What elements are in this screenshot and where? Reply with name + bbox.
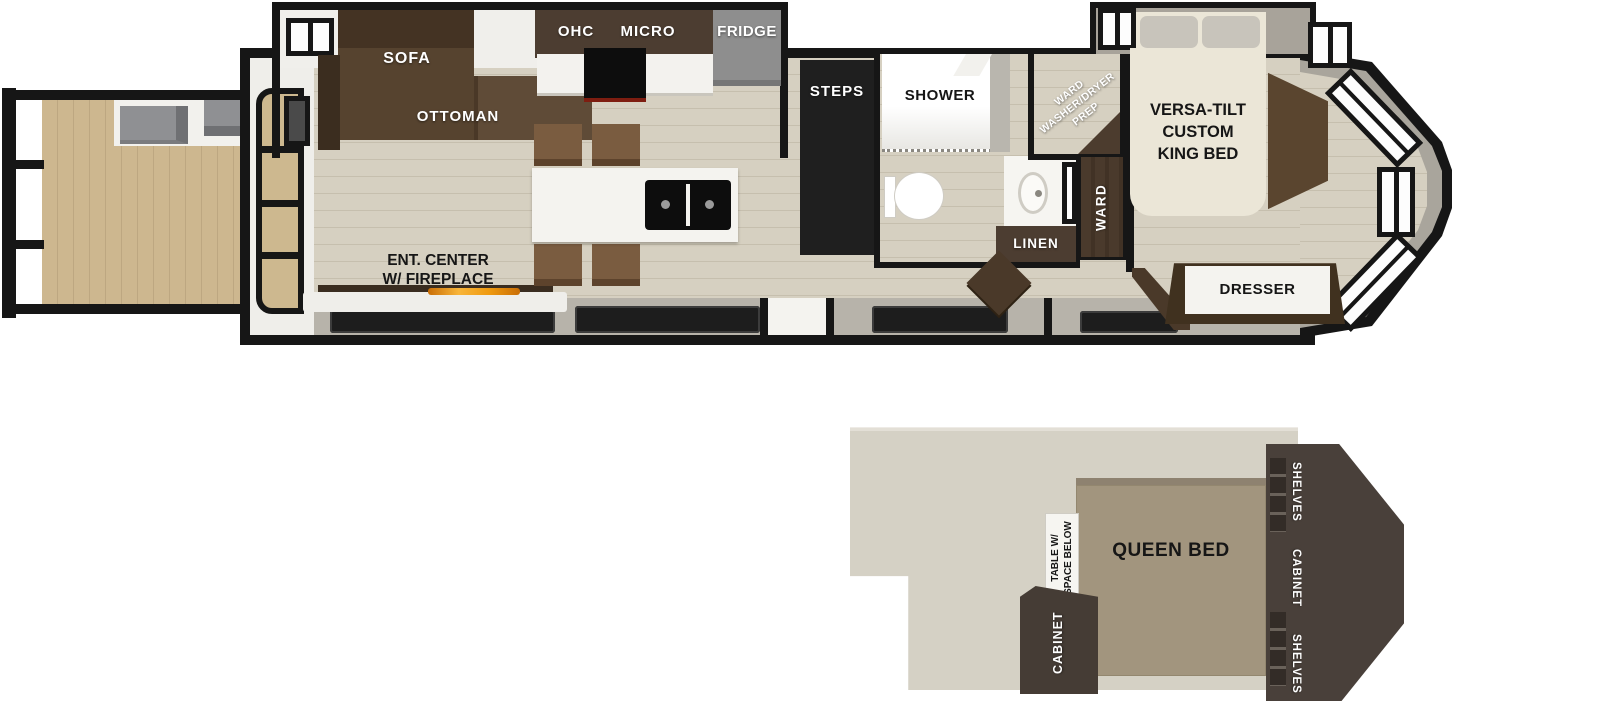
entry-door-opening <box>760 298 834 335</box>
front-cap-window-center <box>1377 167 1415 237</box>
entry-door-post <box>760 298 768 335</box>
skirt-window <box>330 310 555 333</box>
fireplace-flame <box>428 288 520 295</box>
shelves-bottom-label: SHELVES <box>1284 622 1308 701</box>
sofa-label: SOFA <box>352 48 462 70</box>
ent-center-label: ENT. CENTER W/ FIREPLACE <box>328 250 548 290</box>
stove <box>584 48 646 102</box>
sofa-armrest <box>318 55 340 150</box>
faucet <box>661 200 670 209</box>
living-window <box>286 18 334 56</box>
sofa-back <box>338 10 474 50</box>
dresser-label: DRESSER <box>1185 280 1330 300</box>
ottoman-label: OTTOMAN <box>408 106 508 128</box>
shower-label: SHOWER <box>890 86 990 106</box>
entry-door-post <box>826 298 834 335</box>
linen-label: LINEN <box>996 234 1076 254</box>
deck-rail-top <box>12 90 242 100</box>
faucet <box>705 200 714 209</box>
bedroom-window-left <box>1098 8 1136 50</box>
deck-chair <box>120 106 188 144</box>
skirt-window <box>872 306 1008 333</box>
fireplace-mantel <box>303 292 567 312</box>
dining-chair <box>592 244 640 286</box>
fridge-label: FRIDGE <box>710 22 784 42</box>
skirt-window <box>575 306 760 333</box>
dining-chair <box>592 124 640 166</box>
queen-bed-label: QUEEN BED <box>1076 538 1266 564</box>
vanity-sink <box>1018 172 1048 214</box>
ohc-label: OHC <box>548 22 604 42</box>
rear-deck <box>2 88 242 318</box>
dining-chair <box>534 244 582 286</box>
steps-label: STEPS <box>800 82 874 102</box>
bedroom-window-right <box>1308 22 1352 68</box>
toilet-bowl <box>894 172 944 220</box>
loft-cabinet-label: CABINET <box>1046 598 1072 688</box>
pillow <box>1202 16 1260 48</box>
island-sink <box>645 180 731 230</box>
cabinet-side-label: CABINET <box>1284 538 1308 618</box>
skirt-seam <box>1044 298 1052 345</box>
queen-bed <box>1076 478 1266 676</box>
floorplan-canvas: SOFA OTTOMAN OHC MICRO FRIDGE ENT. CENTE… <box>0 0 1600 701</box>
deck-rail-post <box>14 160 44 169</box>
ward-label: WARD <box>1088 164 1116 250</box>
pillow <box>1140 16 1198 48</box>
king-bed-label: VERSA-TILT CUSTOM KING BED <box>1130 92 1266 172</box>
deck-rail-left <box>2 88 16 318</box>
dining-chair <box>534 124 582 166</box>
deck-rail-bottom <box>12 304 242 314</box>
shelves-top-label: SHELVES <box>1284 450 1308 534</box>
deck-chair <box>204 100 242 136</box>
deck-rail-post <box>14 240 44 249</box>
micro-label: MICRO <box>612 22 684 42</box>
